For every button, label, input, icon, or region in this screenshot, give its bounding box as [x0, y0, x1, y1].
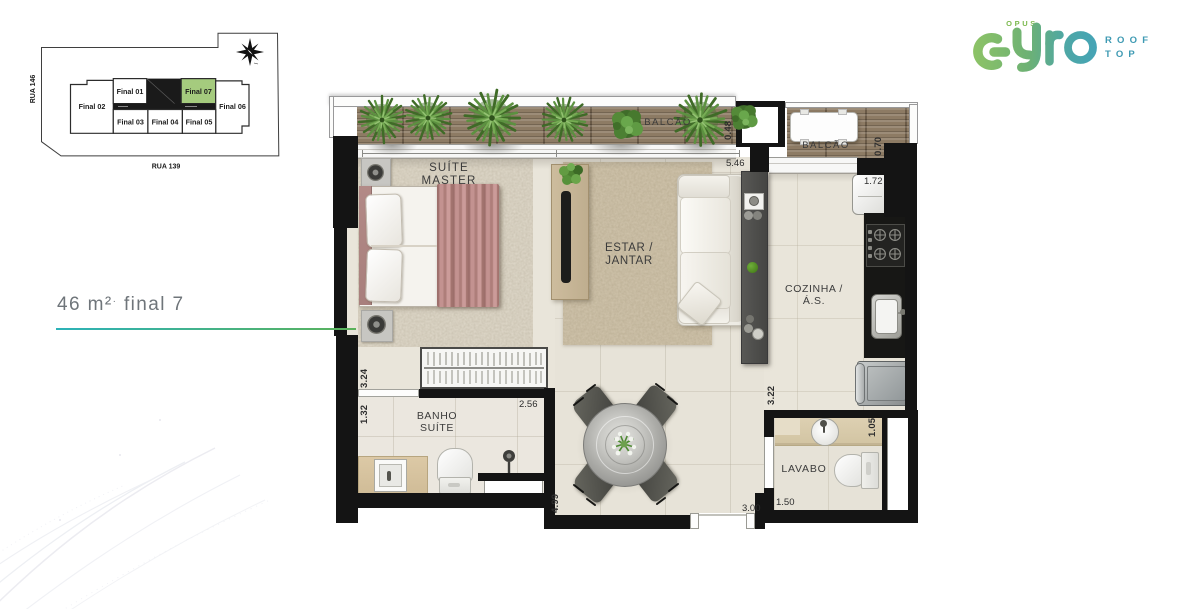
svg-text:TOP: TOP	[1105, 49, 1140, 60]
svg-text:Final 07: Final 07	[185, 87, 212, 96]
svg-text:RUA 139: RUA 139	[152, 164, 181, 171]
svg-text:Final 06: Final 06	[219, 102, 246, 111]
svg-text:Final 03: Final 03	[117, 118, 144, 127]
svg-text:Final 04: Final 04	[152, 118, 179, 127]
svg-text:Final 01: Final 01	[117, 87, 144, 96]
svg-text:RUA 146: RUA 146	[30, 75, 37, 104]
svg-text:ROOF: ROOF	[1105, 35, 1153, 46]
svg-text:Final 02: Final 02	[79, 102, 106, 111]
svg-text:Final 05: Final 05	[186, 118, 213, 127]
